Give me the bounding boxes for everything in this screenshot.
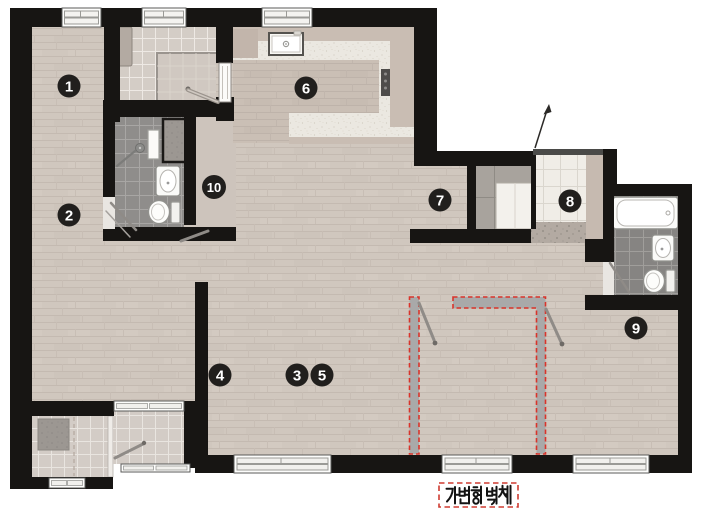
svg-text:3: 3 xyxy=(293,368,301,385)
svg-text:2: 2 xyxy=(65,208,73,225)
svg-text:4: 4 xyxy=(216,368,225,385)
svg-text:7: 7 xyxy=(436,193,444,210)
svg-text:9: 9 xyxy=(632,321,640,338)
svg-text:5: 5 xyxy=(318,368,326,385)
svg-text:6: 6 xyxy=(302,81,310,98)
svg-text:8: 8 xyxy=(566,194,574,211)
svg-text:1: 1 xyxy=(65,79,73,96)
svg-text:10: 10 xyxy=(207,180,221,195)
